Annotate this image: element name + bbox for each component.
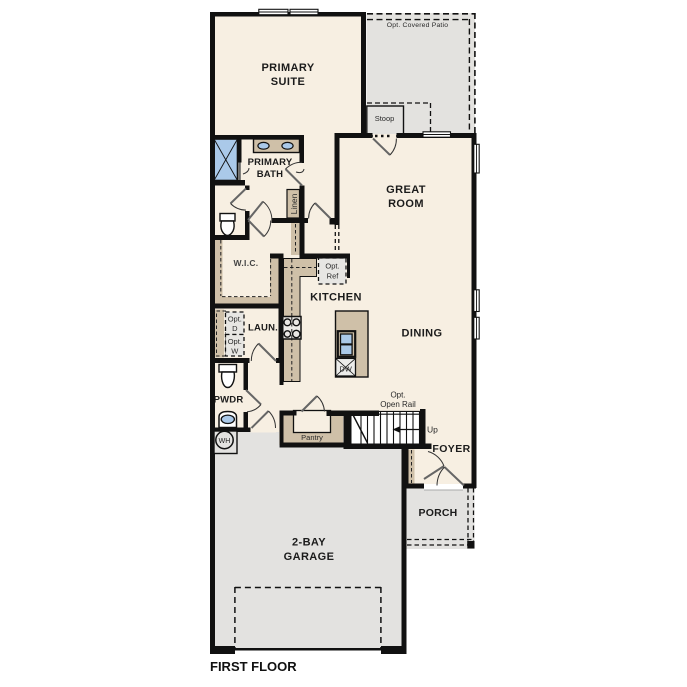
svg-text:Pantry: Pantry: [301, 433, 323, 442]
svg-text:PRIMARY: PRIMARY: [248, 157, 293, 168]
svg-text:KITCHEN: KITCHEN: [310, 292, 362, 304]
svg-text:W.I.C.: W.I.C.: [234, 258, 259, 268]
svg-text:GARAGE: GARAGE: [284, 551, 335, 563]
svg-text:BATH: BATH: [257, 169, 283, 180]
svg-text:Stoop: Stoop: [375, 114, 395, 123]
svg-text:GREAT: GREAT: [386, 184, 426, 196]
svg-text:D: D: [232, 324, 238, 333]
svg-text:Opt. Covered Patio: Opt. Covered Patio: [387, 22, 448, 29]
svg-text:Opt.: Opt.: [228, 337, 242, 346]
svg-text:DW: DW: [339, 365, 352, 374]
svg-text:W: W: [231, 347, 239, 356]
svg-text:Opt.: Opt.: [325, 262, 339, 271]
svg-text:FOYER: FOYER: [432, 443, 470, 455]
svg-text:PRIMARY: PRIMARY: [261, 62, 314, 74]
svg-text:WH: WH: [219, 438, 231, 445]
svg-text:Ref: Ref: [327, 272, 340, 281]
svg-text:FIRST FLOOR: FIRST FLOOR: [210, 659, 297, 674]
svg-text:Opt.: Opt.: [228, 315, 242, 324]
svg-text:Open Rail: Open Rail: [380, 400, 416, 409]
svg-text:SUITE: SUITE: [271, 76, 305, 88]
svg-text:Linen: Linen: [289, 193, 299, 214]
svg-text:PWDR: PWDR: [214, 395, 244, 406]
svg-text:Opt.: Opt.: [390, 391, 405, 400]
svg-text:PORCH: PORCH: [419, 507, 458, 519]
svg-text:DINING: DINING: [402, 328, 443, 340]
svg-text:Up: Up: [427, 425, 438, 435]
svg-text:LAUN.: LAUN.: [248, 323, 278, 334]
svg-text:2-BAY: 2-BAY: [292, 537, 326, 549]
svg-text:ROOM: ROOM: [388, 198, 424, 210]
